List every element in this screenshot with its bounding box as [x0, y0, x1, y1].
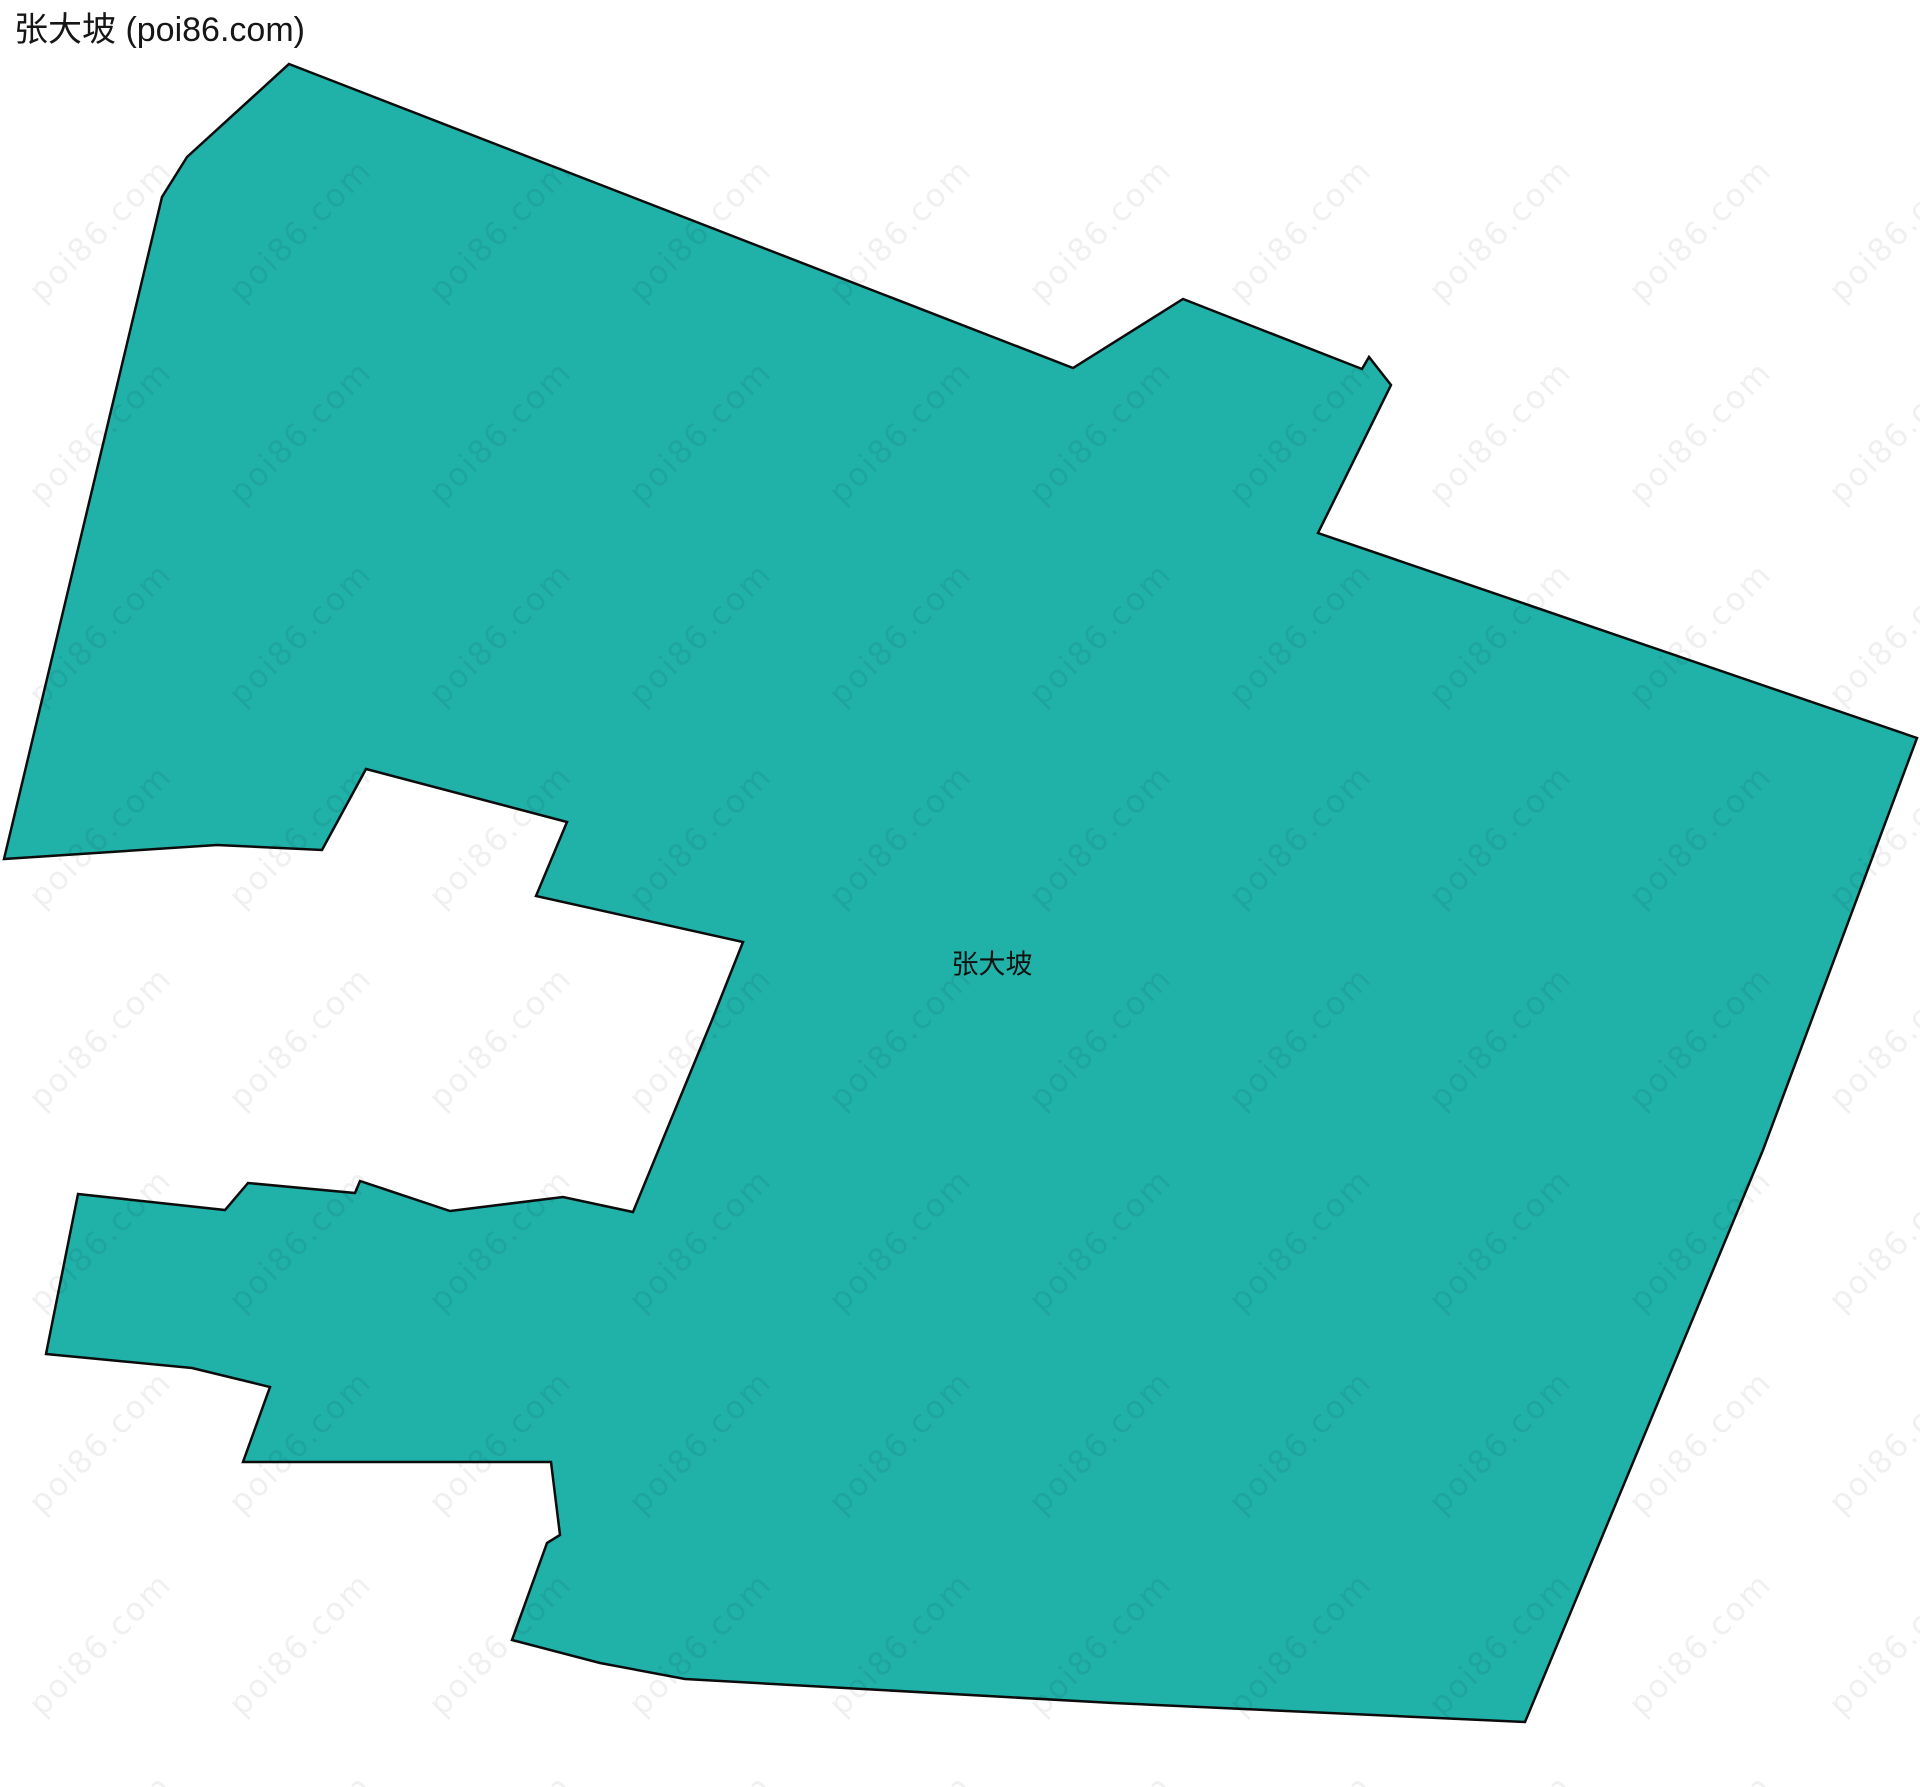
region-map-canvas: [0, 0, 1920, 1787]
page-title: 张大坡 (poi86.com): [14, 10, 305, 51]
map-stage: poi86.compoi86.compoi86.compoi86.compoi8…: [0, 0, 1920, 1787]
region-label: 张大坡: [952, 943, 1033, 982]
region-boundary-polygon: [4, 64, 1917, 1722]
